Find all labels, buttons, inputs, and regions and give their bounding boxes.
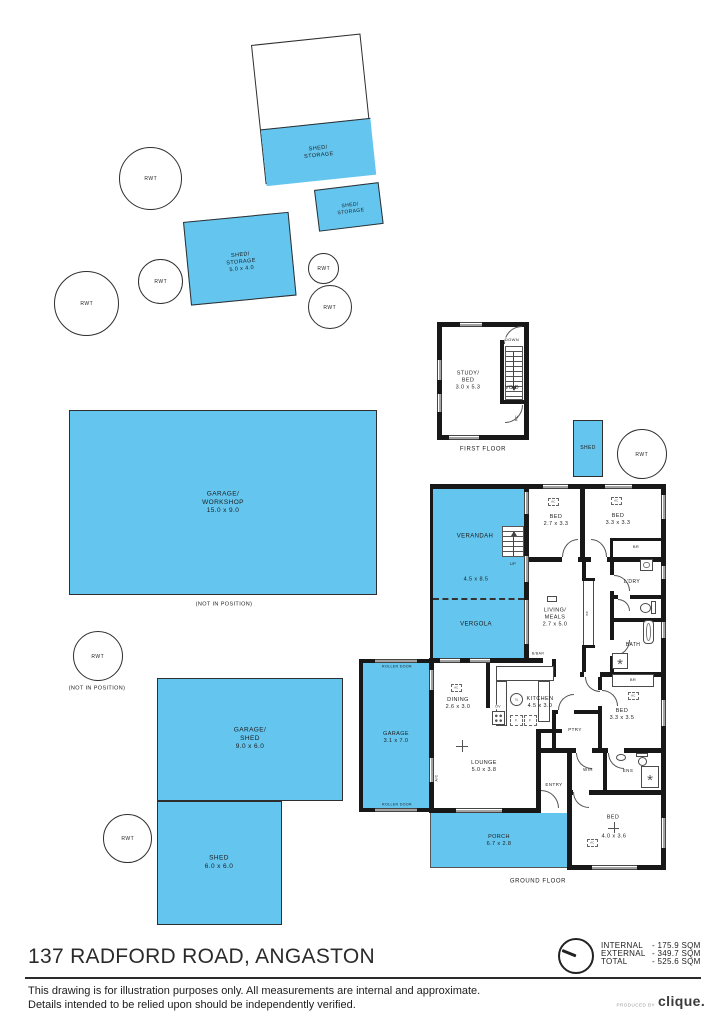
door-arc [573,792,589,808]
window [524,556,529,582]
verandah-area [433,489,524,658]
bed4-dim-label: 4.0 x 3.6 [602,832,627,839]
toilet-bowl-icon [640,603,651,613]
door-arc [602,690,618,706]
breakfast-bar-label: B/BAR [532,652,545,656]
wir-label: WIR [583,767,593,773]
robe-label: BR [633,544,639,549]
shed-outline-top: SHED/ STORAGE [251,34,375,185]
sink-label: SL [515,698,519,701]
wall [567,752,572,808]
not-in-position-label: (NOT IN POSITION) [196,600,253,607]
window [429,670,434,690]
window [592,865,637,870]
bathtub-icon [643,620,654,644]
roller-door-label: ROLLER DOOR [382,665,412,669]
living-meals-label: LIVING/ MEALS 2.7 x 5.0 [543,606,568,627]
lounge-label: LOUNGE 5.0 x 3.8 [471,759,497,773]
wall [610,538,661,541]
total-area-label: TOTAL [601,957,628,966]
ac-wall-label: A/C [435,774,439,781]
disclaimer-line2: Details intended to be relied upon shoul… [28,998,356,1012]
wall [589,790,661,795]
fridge-space-icon: F [510,715,523,726]
brand-logo: clique. [658,993,705,1009]
rwt-label: RWT [92,653,105,659]
compass-needle-icon [562,949,577,957]
ceiling-fan-icon [456,740,468,752]
produced-by-label: PRODUCED BY [616,1003,655,1008]
rwt-tank: RWT [308,253,339,284]
disclaimer-line1: This drawing is for illustration purpose… [28,984,480,998]
shower-icon: * [612,653,628,669]
door-arc [591,539,607,557]
rwt-label: RWT [80,301,93,307]
wall [430,484,433,658]
window [456,808,502,813]
study-bed-label: STUDY/ BED 3.0 x 5.3 [456,369,481,390]
wall [630,595,661,599]
ac-unit-icon: AC [628,692,639,700]
verandah-label: VERANDAH [457,532,494,540]
wall [524,322,529,440]
vergola-divider [433,598,524,600]
total-area-value: - 525.6 SQM [652,957,701,966]
window [470,658,490,663]
wall [610,595,618,599]
wall [661,484,666,870]
north-compass-icon [558,938,594,974]
door-arc [541,790,559,808]
tv-unit-icon [547,596,557,602]
wall [524,557,562,562]
bc-label: BC [586,611,590,616]
ac-text: AC [631,695,635,698]
fridge-label: F [515,719,517,723]
wall [574,710,600,714]
garage-shed-label: GARAGE/ SHED 9.0 x 6.0 [234,726,266,751]
ens-label: ENS [623,768,633,774]
shed-storage-small: SHED/ STORAGE [314,182,384,232]
window [437,394,442,412]
ground-floor-caption: GROUND FLOOR [510,877,566,885]
rwt-tank: RWT [103,814,152,863]
porch-label: PORCH 6.7 x 2.8 [487,833,512,847]
window [661,622,666,638]
window [429,758,434,782]
basin-icon [616,754,626,761]
bed3-label: BED 3.3 x 3.5 [610,707,635,721]
wall [580,484,585,557]
wall [610,557,614,575]
up-label: UP [510,561,516,566]
page-title: 137 RADFORD ROAD, ANGASTON [28,945,375,969]
window [661,700,666,726]
wall [500,400,524,404]
entry-label: ENTRY [545,782,562,788]
rwt-label: RWT [144,176,157,182]
window [605,484,632,489]
ac-unit-icon: AC [587,839,598,847]
oven-label: OV [495,705,501,709]
rwt-tank: RWT [54,271,119,336]
laundry-label: L'DRY [624,579,640,585]
window [661,495,666,519]
ceiling-fan-icon [608,822,619,833]
window [440,658,460,663]
shed-small-label: SHED [580,445,595,451]
rwt-tank: RWT [308,285,352,329]
wall [580,672,584,677]
sliding-door [524,600,529,644]
shed-storage-5040-label: SHED/ STORAGE 5.0 x 4.0 [225,250,256,274]
rwt-label: RWT [324,304,337,310]
rwt-tank: RWT [119,147,182,210]
wall [500,340,504,402]
kitchen-label: KITCHEN 4.5 x 3.0 [527,695,554,709]
sink-icon: SL [510,693,523,706]
toilet-bowl-icon [638,757,647,766]
robe-label: BR [630,677,636,682]
wall [610,538,613,557]
fridge-space-icon: F [524,715,537,726]
wall [582,557,586,580]
bed1-label: BED 2.7 x 3.3 [544,513,569,527]
toilet-tank-icon [651,601,656,614]
garage-workshop-label: GARAGE/ WORKSHOP 15.0 x 9.0 [202,490,244,515]
not-in-position-label: (NOT IN POSITION) [69,684,126,691]
garage-label: GARAGE 3.1 x 7.0 [383,730,409,744]
rc-label: RC [515,415,519,421]
rwt-tank: RWT [73,631,123,681]
bed4-label: BED [607,813,620,820]
wall [486,662,490,708]
kitchen-bench [496,666,554,681]
rwt-label: RWT [317,266,330,272]
floorplan-page: SHED/ STORAGE SHED/ STORAGE SHED/ STORAG… [0,0,725,1024]
divider-line [25,977,701,979]
bath-label: BATH [626,642,641,648]
window [449,435,479,440]
window [661,818,666,848]
window [524,492,529,514]
ac-text: AC [454,687,458,690]
roller-door [375,659,417,663]
pantry-label: PTRY [568,727,582,733]
window [661,566,666,579]
washing-machine-icon [640,559,653,571]
door-arc [562,539,578,557]
wall [359,659,363,812]
window [460,322,482,327]
vergola-label: VERGOLA [460,620,492,628]
wall [603,752,607,790]
wall [567,808,572,870]
bed2-label: BED 3.3 x 3.3 [606,512,631,526]
ac-text: AC [614,500,618,503]
rwt-label: RWT [154,279,167,285]
window [543,484,568,489]
wall [582,647,586,672]
ac-text: AC [590,842,594,845]
wall [437,322,442,440]
window [437,360,442,380]
rwt-tank: RWT [617,429,667,479]
shed-storage-5040: SHED/ STORAGE 5.0 x 4.0 [183,212,297,306]
shed-storage-small-label: SHED/ STORAGE [336,201,365,217]
down-label: DOWN [505,337,519,342]
door-arc [585,677,600,692]
void-label: VOID [505,385,519,391]
roller-door-label: ROLLER DOOR [382,803,412,807]
shed-6x6-label: SHED 6.0 x 6.0 [205,854,234,871]
ac-unit-icon: AC [611,497,622,505]
ac-unit-icon: AC [451,684,462,692]
cooktop-icon [492,711,505,725]
door-arc [558,694,574,710]
ac-text: AC [551,501,555,504]
door-arc [618,599,630,611]
rwt-label: RWT [636,451,649,457]
rwt-tank: RWT [138,259,183,304]
rwt-label: RWT [121,836,134,842]
stairs-arrow-icon [513,532,514,556]
shower-icon: * [641,766,659,788]
verandah-dim-label: 4.5 x 8.5 [464,575,489,582]
first-floor-caption: FIRST FLOOR [460,445,506,453]
dining-label: DINING 2.6 x 3.0 [446,696,471,710]
fridge-label: F [529,719,531,723]
ac-unit-icon: AC [548,498,559,506]
roller-door [375,808,417,812]
